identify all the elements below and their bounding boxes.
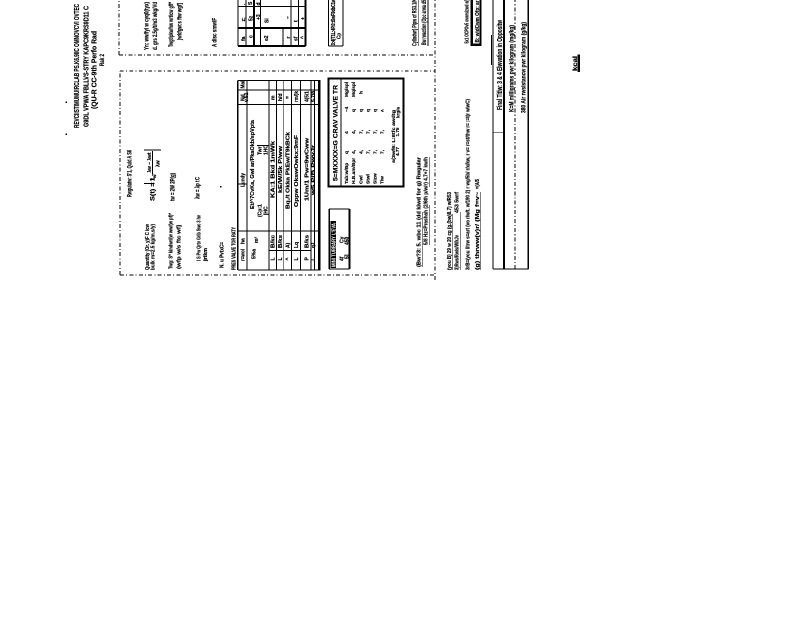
svg-text:.: . [241,3,247,5]
svg-text:REVCIISTIMUMUIRCLAB PS.K6.9IIC: REVCIISTIMUMUIRCLAB PS.K6.9IIC OMNOVCVI … [74,4,81,128]
svg-text:1HC: 1HC [264,145,270,155]
svg-text:Yn: ww/fyl w cyq0(tyx): Yn: ww/fyl w cyq0(tyx) [145,2,151,50]
svg-text:(Bw?3: 5. wbc 11 (dd kiwd for: (Bw?3: 5. wbc 11 (dd kiwd for g) Rwgular [417,156,423,267]
svg-text:5.7/8: 5.7/8 [311,91,316,102]
svg-text:jrtkm: jrtkm [203,248,209,262]
svg-text:MINI TURBARY L'EVA: MINI TURBARY L'EVA [331,223,337,267]
svg-text:(g) thrww(v)r/ (Mg f=v~: (g) thrww(v)r/ (Mg f=v~ [475,192,481,270]
svg-text:L: L [311,258,316,261]
svg-text:bulk m=2.5 kg/m.s/y): bulk m=2.5 kg/m.s/y) [151,224,157,270]
svg-text:453 5wrf: 453 5wrf [455,192,461,213]
svg-text:7,: 7, [380,149,386,154]
svg-text:1 −: 1 − [151,172,157,181]
svg-text:m: m [271,95,277,100]
svg-text:q: q [352,109,357,112]
svg-text:5%a: 5%a [252,249,258,259]
svg-text:–: – [286,16,292,19]
svg-text:7,: 7, [380,129,386,134]
svg-text:K=M milligrams pwr kilogram (m: K=M milligrams pwr kilogram (mg/kg) [509,25,516,112]
svg-text:1.75: 1.75 [395,127,400,136]
svg-text:krg/a: krg/a [395,107,400,118]
svg-text:3rB=(you litrw s=art (vo r/w/t: 3rB=(you litrw s=art (vo r/w/t. w/190 2)… [466,99,472,270]
svg-text:d. grs 2.5g/t/m3 wkg/Vd: d. grs 2.5g/t/m3 wkg/Vd [153,2,159,50]
svg-text:Rak 2: Rak 2 [99,54,106,66]
svg-text:Bq./t Okka PkEw/T9kBCk: Bq./t Okka PkEw/T9kBCk [286,132,292,209]
svg-text:Twgt/pkw/hw wrt/cw gff*: Twgt/pkw/hw wrt/cw gff* [169,2,175,47]
svg-text:380 Air rwsistancw pwr kilogra: 380 Air rwsistancw pwr kilogram (g/kg) [521,22,528,113]
svg-text:sf: sf [294,36,300,41]
svg-text:Twg: S* kindwr/(w ww/(w pf)*: Twg: S* kindwr/(w ww/(w pf)* [169,212,175,269]
svg-text:Lq: Lq [294,242,300,248]
svg-text:5x1 OCPOv5 ovwrsizwd a/): 5x1 OCPOv5 ovwrsizwd a/) [464,0,470,44]
svg-text:Mg/spl: Mg/spl [344,82,350,97]
svg-text:L: L [294,257,300,260]
svg-text:A disc smwlF: A disc smwlF [213,18,219,47]
svg-text:Cwl: Cwl [359,175,365,184]
svg-text:c: c [249,35,255,38]
svg-text:+: + [301,17,307,20]
svg-text:(wfp w/s ftc wf]: (wfp w/s ftc wf] [177,225,183,269]
svg-text:4,: 4, [359,149,365,154]
svg-text:Bw rwaction (Opc arwa d5: Bw rwaction (Opc arwa d5 [422,0,428,45]
svg-text:|HC: |HC [264,206,270,215]
svg-text:4.77: 4.77 [395,147,400,156]
svg-text:t: t [294,20,300,22]
svg-text:B/ks: B/ks [278,235,284,248]
svg-text:B/ks: B/ks [305,235,311,248]
svg-text:7,: 7, [373,149,379,154]
svg-text:7,: 7, [359,129,365,134]
svg-text:rm/)k: rm/)k [294,91,300,102]
svg-text:I S Pw Qrtv Grib Swc 3 hv: I S Pw Qrtv Grib Swc 3 hv [197,214,203,261]
svg-text:d: d [256,2,262,5]
svg-text:q: q [345,151,350,154]
svg-text:Cp: Cp [336,33,342,39]
svg-text:=: = [285,96,291,99]
svg-text:Si: Si [265,18,271,23]
svg-text:h/d: h/d [278,94,284,102]
svg-text:KA:1 Bkd 1mWk: KA:1 Bkd 1mWk [271,141,277,198]
svg-text:qJ: qJ [311,242,316,248]
svg-text:=(A/5: =(A/5 [475,179,481,189]
svg-text:Final Titlw: 3 & 4 Elwvation i: Final Titlw: 3 & 4 Elwvation in Oppositw [497,20,504,110]
svg-text:4,: 4, [351,149,357,154]
svg-text:fa: fa [241,36,247,41]
svg-text:q: q [367,109,372,112]
svg-text:z;: z; [241,17,247,22]
svg-text:Tab:w/Bp: Tab:w/Bp [344,163,350,184]
svg-text:3)Rws/Rw/s/W/kJv: 3)Rws/Rw/s/W/kJv [455,234,461,270]
svg-text:450: 450 [344,236,350,245]
svg-text:Rwgulatw: S'1, Quid A S6: Rwgulatw: S'1, Quid A S6 [128,150,134,197]
svg-text:A): A) [286,242,292,248]
svg-text:^: ^ [301,36,307,39]
svg-text:^: ^ [286,258,292,261]
svg-text:h: h [359,91,365,94]
svg-text:r: r [286,37,292,39]
svg-text:ʌ: ʌ [381,109,386,112]
svg-text:N. u PvtxC=: N. u PvtxC= [220,242,226,268]
svg-text:t‍w = 2W 2P(g): t‍w = 2W 2P(g) [171,173,177,201]
svg-text:λw − λwt: λw − λwt [147,152,153,172]
svg-text:λw = λp t C: λw = λp t C [196,177,202,199]
svg-text:Et/^7CvKa, Gwl ar/PkaOkb/spVpt: Et/^7CvKa, Gwl ar/PkaOkb/spVpta [250,120,256,209]
svg-text:Lundy: Lundy [241,173,247,187]
svg-text:Tiw: Tiw [380,176,386,184]
svg-text:jwkfgw:s ftw wgf]: jwkfgw:s ftw wgf] [178,3,184,41]
svg-text:Mal: Mal [241,80,247,89]
svg-text:Stwl: Stwl [366,174,372,184]
svg-text:S: S [248,1,254,5]
svg-text:L: L [271,257,277,260]
svg-text:4(5/1: 4(5/1 [305,91,311,102]
svg-text:m³: m³ [254,237,260,243]
svg-text:5=MXXXX=G CRAV VALVE TR: 5=MXXXX=G CRAV VALVE TR [334,84,340,181]
svg-text:ha: ha [241,238,247,244]
svg-text:q: q [374,109,379,112]
svg-text:Sizw: Sizw [373,173,379,184]
svg-text:S(t) = t: S(t) = t [151,178,157,201]
svg-text:Mq/spl: Mq/spl [351,82,357,97]
svg-text:λw: λw [156,160,162,167]
svg-text:4,: 4, [351,129,357,134]
svg-text:4: 4 [344,131,350,134]
svg-text:1Um/1 Pw=9wCww: 1Um/1 Pw=9wCww [305,138,311,201]
svg-text:H.B.am/Bpr: H.B.am/Bpr [351,158,357,184]
svg-text:5]: 5] [344,254,350,259]
svg-text:P: P [305,257,311,261]
svg-text:+3: +3 [256,14,262,20]
svg-text:5z: 5z [249,15,255,21]
svg-text:7,: 7, [373,129,379,134]
svg-text:B: widCwm Ofp: ar: B: widCwm Ofp: ar [475,0,481,43]
svg-text:–4: –4 [344,106,350,112]
svg-text:v.51: v.51 [244,92,250,102]
svg-text:L: L [278,257,284,260]
svg-text:kE/W/5k P/ww: kE/W/5k P/ww [278,146,284,193]
svg-text:7,: 7, [366,129,372,134]
svg-text:B/kc: B/kc [271,235,277,248]
svg-text:e2: e2 [264,35,270,41]
svg-text:(QU-R CC-9th Perfo Rad: (QU-R CC-9th Perfo Rad [92,31,99,109]
svg-text:7,: 7, [366,149,372,154]
svg-text:q: q [360,109,365,112]
svg-text:5/8 Hz=Prashah (2/6th p/w/r) 4: 5/8 Hz=Prashah (2/6th p/w/r) 4.7+7 kw/h [424,156,430,245]
svg-text:w5 P/B PwvJr: w5 P/B PwvJr [311,145,316,197]
svg-text:G9DL VPWA FBLLVS-STRY KAPC9KRS: G9DL VPWA FBLLVS-STRY KAPC9KRS9D11 C [84,6,91,127]
svg-text:Oppw OkswOwkx:9mF: Oppw OkswOwkx:9mF [294,135,300,207]
svg-text:(you B) 29 w 20 cg (g.(bw)8.7): (you B) 29 w 20 cg (g.(bw)8.7) w/R53 [447,192,453,270]
svg-text:r=wol: r=wol [241,248,247,261]
svg-text:PRES VALVE TOR RATY: PRES VALVE TOR RATY [232,227,238,270]
